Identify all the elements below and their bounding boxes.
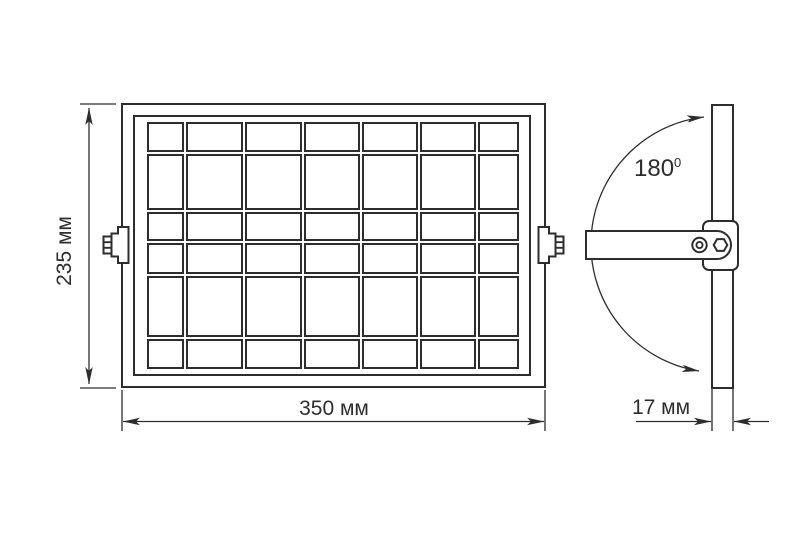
solar-cell (305, 155, 359, 209)
solar-cell (305, 213, 359, 240)
right-bracket-plate (539, 227, 556, 263)
floodlight-dimension-drawing: 235 мм 350 мм 1800 17 мм (0, 0, 800, 533)
solar-cell (187, 213, 242, 240)
side-view: 1800 (586, 105, 738, 388)
solar-cell (148, 244, 183, 273)
solar-cell (479, 213, 518, 240)
solar-cell (246, 123, 301, 151)
solar-cell (479, 244, 518, 273)
solar-cell (421, 277, 475, 336)
width-dimension-label: 350 мм (299, 397, 369, 420)
solar-cell (187, 244, 242, 273)
solar-cell (421, 340, 475, 368)
solar-cell (363, 213, 417, 240)
solar-cell (363, 277, 417, 336)
hinge-bolt-outer (692, 238, 706, 252)
left-bracket-bolt (104, 237, 112, 254)
solar-cell-grid (148, 123, 518, 368)
depth-dimension: 17 мм (632, 389, 769, 431)
solar-cell (246, 340, 301, 368)
solar-cell (148, 277, 183, 336)
solar-cell (246, 277, 301, 336)
right-mount-bracket (539, 227, 564, 263)
solar-cell (479, 123, 518, 151)
solar-cell (421, 123, 475, 151)
solar-cell (305, 340, 359, 368)
solar-cell (148, 155, 183, 209)
left-bracket-plate (112, 227, 129, 263)
solar-cell (479, 277, 518, 336)
solar-cell (187, 277, 242, 336)
solar-cell (479, 155, 518, 209)
solar-cell (421, 244, 475, 273)
solar-cell (421, 213, 475, 240)
solar-cell (305, 244, 359, 273)
solar-cell (479, 340, 518, 368)
solar-cell (363, 155, 417, 209)
solar-cell (187, 340, 242, 368)
technical-drawing-page: 235 мм 350 мм 1800 17 мм (0, 0, 800, 533)
right-bracket-bolt (556, 237, 564, 254)
mount-arm (586, 231, 731, 259)
front-view (104, 104, 564, 387)
solar-cell (246, 244, 301, 273)
solar-cell (363, 340, 417, 368)
angle-value: 180 (634, 155, 674, 182)
solar-cell (363, 244, 417, 273)
solar-cell (305, 277, 359, 336)
depth-dimension-label: 17 мм (632, 396, 690, 419)
hinge-nut-icon (714, 239, 728, 251)
width-dimension: 350 мм (122, 390, 545, 431)
solar-cell (148, 213, 183, 240)
solar-cell (246, 213, 301, 240)
solar-cell (305, 123, 359, 151)
solar-cell (421, 155, 475, 209)
angle-superscript: 0 (674, 155, 681, 170)
height-dimension-label: 235 мм (53, 216, 76, 286)
solar-cell (363, 123, 417, 151)
left-mount-bracket (104, 227, 129, 263)
solar-cell (246, 155, 301, 209)
solar-cell (187, 123, 242, 151)
rotation-angle-label: 1800 (634, 155, 681, 182)
solar-cell (148, 123, 183, 151)
solar-cell (187, 155, 242, 209)
solar-cell (148, 340, 183, 368)
